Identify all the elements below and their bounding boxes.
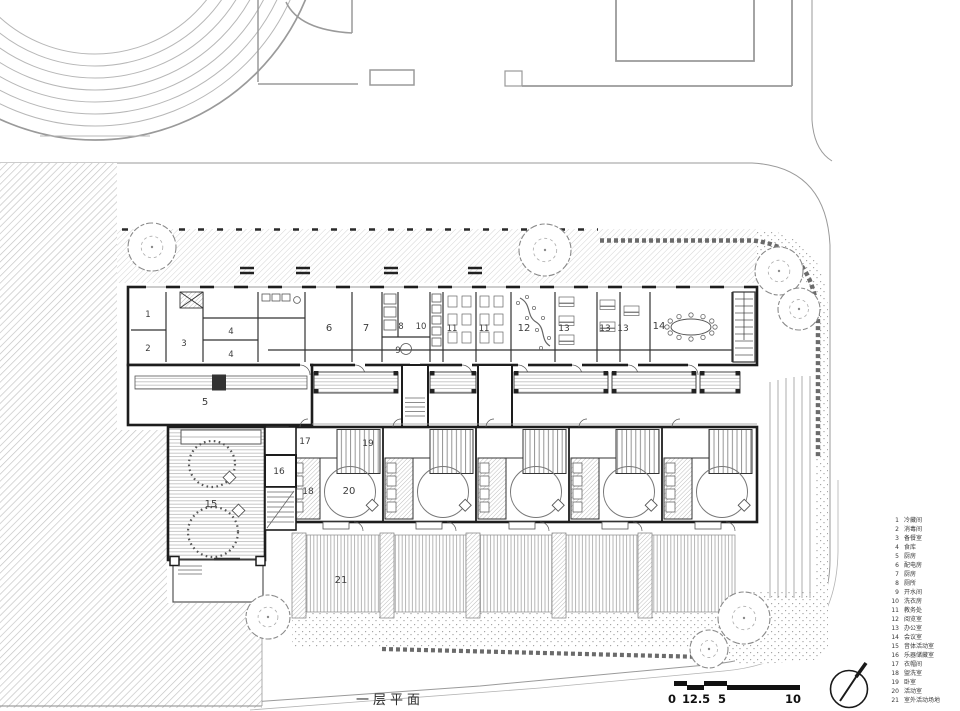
room-number-label: 7 xyxy=(363,323,369,334)
legend-item: 17衣帽间 xyxy=(889,660,940,669)
legend-item-label: 卧室 xyxy=(904,678,916,687)
legend-item: 1冷藏间 xyxy=(889,516,940,525)
kitchen-counter xyxy=(135,375,307,391)
legend-item: 2消毒间 xyxy=(889,525,940,534)
legend-item-number: 2 xyxy=(889,525,899,534)
legend-item-label: 乐器储藏室 xyxy=(904,651,934,660)
covered-walkways xyxy=(312,365,757,427)
legend-item: 12阅览室 xyxy=(889,615,940,624)
legend-item-number: 15 xyxy=(889,642,899,651)
room-number-label: 4 xyxy=(228,327,233,337)
legend-item-number: 8 xyxy=(889,579,899,588)
room-number-label: 15 xyxy=(205,499,218,510)
legend-item-number: 1 xyxy=(889,516,899,525)
legend-item-label: 会议室 xyxy=(904,633,922,642)
legend-item-label: 厕所 xyxy=(904,579,916,588)
legend-item: 7厨房 xyxy=(889,570,940,579)
legend-item: 10洗衣房 xyxy=(889,597,940,606)
floor-plan-sheet: 1234456789101111121313131415161718192021… xyxy=(0,0,960,711)
link-lobby xyxy=(402,365,428,427)
legend: 1冷藏间2消毒间3备餐室4食库5厨房6配电房7厨房8厕所9开水间10洗衣房11教… xyxy=(889,516,940,705)
legend-item-label: 食库 xyxy=(904,543,916,552)
floor-plan-drawing: 1234456789101111121313131415161718192021 xyxy=(0,0,960,711)
legend-item-number: 14 xyxy=(889,633,899,642)
legend-item-number: 10 xyxy=(889,597,899,606)
legend-item: 3备餐室 xyxy=(889,534,940,543)
room-number-label: 11 xyxy=(447,324,458,334)
scale-label: 1 xyxy=(682,692,690,706)
legend-item-label: 音体活动室 xyxy=(904,642,934,651)
room-number-label: 17 xyxy=(299,437,310,447)
legend-item: 5厨房 xyxy=(889,552,940,561)
room-number-label: 4 xyxy=(228,350,233,360)
legend-item: 18盥洗室 xyxy=(889,669,940,678)
legend-item-label: 配电房 xyxy=(904,561,922,570)
legend-item-label: 阅览室 xyxy=(904,615,922,624)
legend-item: 19卧室 xyxy=(889,678,940,687)
room-number-label: 2 xyxy=(145,344,150,354)
legend-item-number: 17 xyxy=(889,660,899,669)
legend-item: 13办公室 xyxy=(889,624,940,633)
legend-item-number: 3 xyxy=(889,534,899,543)
room-number-label: 10 xyxy=(416,322,427,332)
context-building-right xyxy=(505,0,832,161)
main-building-upper-wing xyxy=(128,285,757,425)
legend-item-label: 衣帽间 xyxy=(904,660,922,669)
legend-item-label: 教务处 xyxy=(904,606,922,615)
legend-item-label: 冷藏间 xyxy=(904,516,922,525)
legend-item: 16乐器储藏室 xyxy=(889,651,940,660)
scale-label: 0 xyxy=(668,692,676,706)
legend-item: 11教务处 xyxy=(889,606,940,615)
legend-item-label: 办公室 xyxy=(904,624,922,633)
room-number-label: 12 xyxy=(518,323,531,334)
room-number-label: 13 xyxy=(558,324,569,334)
sand-strip xyxy=(292,612,735,648)
room-number-label: 18 xyxy=(302,487,314,497)
legend-item-label: 室外活动场地 xyxy=(904,696,940,705)
legend-item-number: 12 xyxy=(889,615,899,624)
stair-west xyxy=(265,487,296,530)
legend-item: 20活动室 xyxy=(889,687,940,696)
room-number-label: 13 xyxy=(599,324,610,334)
room-number-label: 3 xyxy=(181,339,186,349)
legend-item-number: 9 xyxy=(889,588,899,597)
outdoor-activity-deck xyxy=(292,533,735,618)
legend-item-label: 消毒间 xyxy=(904,525,922,534)
legend-item-label: 厨房 xyxy=(904,552,916,561)
scale-label: 2.5 xyxy=(690,692,710,706)
legend-item: 4食库 xyxy=(889,543,940,552)
tree xyxy=(246,595,290,639)
tree xyxy=(690,630,728,668)
legend-item-label: 活动室 xyxy=(904,687,922,696)
north-arrow xyxy=(831,663,868,708)
legend-item-label: 洗衣房 xyxy=(904,597,922,606)
room-number-label: 8 xyxy=(398,322,403,332)
legend-item-number: 18 xyxy=(889,669,899,678)
room-number-label: 1 xyxy=(145,310,150,320)
scale-label: 5 xyxy=(718,692,726,706)
room-number-label: 13 xyxy=(617,324,628,334)
room-number-label: 16 xyxy=(273,467,285,477)
room-number-label: 19 xyxy=(362,439,374,449)
entry-lobby xyxy=(478,365,512,427)
room-number-label: 14 xyxy=(653,321,666,332)
legend-item-number: 19 xyxy=(889,678,899,687)
legend-item-number: 21 xyxy=(889,696,899,705)
legend-item: 14会议室 xyxy=(889,633,940,642)
legend-item-label: 厨房 xyxy=(904,570,916,579)
music-activity-block xyxy=(168,427,296,602)
legend-item-label: 盥洗室 xyxy=(904,669,922,678)
legend-item: 9开水间 xyxy=(889,588,940,597)
room-number-label: 20 xyxy=(343,486,356,497)
scale-bar xyxy=(674,681,800,690)
legend-item-label: 开水间 xyxy=(904,588,922,597)
tree xyxy=(128,223,176,271)
entry-porch xyxy=(170,557,265,603)
legend-item-label: 备餐室 xyxy=(904,534,922,543)
legend-item: 6配电房 xyxy=(889,561,940,570)
room-number-label: 5 xyxy=(202,397,208,408)
legend-item-number: 20 xyxy=(889,687,899,696)
running-track xyxy=(0,0,323,140)
plan-title: 一层平面 xyxy=(330,689,450,708)
legend-item: 15音体活动室 xyxy=(889,642,940,651)
legend-item-number: 5 xyxy=(889,552,899,561)
tree xyxy=(519,224,571,276)
legend-item-number: 16 xyxy=(889,651,899,660)
kitchen-wing xyxy=(128,365,312,425)
legend-item-number: 11 xyxy=(889,606,899,615)
terrace-steps xyxy=(770,376,810,598)
room-number-label: 9 xyxy=(395,346,400,356)
legend-item-number: 6 xyxy=(889,561,899,570)
tree xyxy=(718,592,770,644)
room-number-label: 11 xyxy=(479,324,490,334)
classroom-band xyxy=(290,419,757,531)
room-number-label: 6 xyxy=(326,323,332,334)
legend-item: 8厕所 xyxy=(889,579,940,588)
scale-label: 10 xyxy=(785,692,801,706)
legend-item: 21室外活动场地 xyxy=(889,696,940,705)
shaft xyxy=(180,292,203,308)
room-number-label: 21 xyxy=(335,575,348,586)
legend-item-number: 4 xyxy=(889,543,899,552)
legend-item-number: 13 xyxy=(889,624,899,633)
legend-item-number: 7 xyxy=(889,570,899,579)
tree xyxy=(778,288,820,330)
